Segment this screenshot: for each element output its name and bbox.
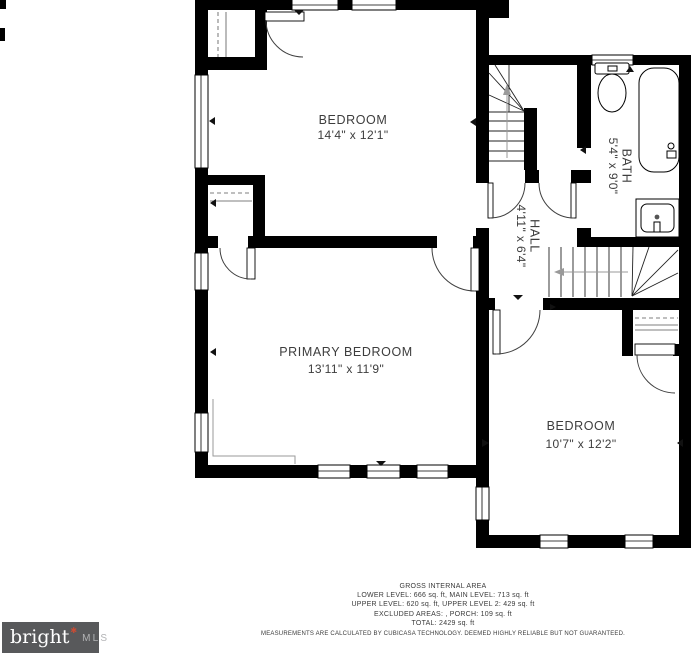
- room-dims-bedroom-right: 10'7" x 12'2": [545, 437, 616, 451]
- toilet-icon: [595, 63, 629, 112]
- area-summary-title: GROSS INTERNAL AREA: [143, 582, 693, 591]
- sink-icon: [636, 199, 679, 237]
- room-label-primary-bedroom: PRIMARY BEDROOM: [279, 345, 413, 359]
- room-dims-hall: 4'11" x 6'4": [514, 204, 528, 267]
- logo-star-icon: ✱: [70, 626, 77, 635]
- room-labels: BEDROOM 14'4" x 12'1" PRIMARY BEDROOM 13…: [279, 113, 633, 451]
- room-label-bath: BATH: [620, 149, 634, 184]
- area-summary-line: LOWER LEVEL: 666 sq. ft, MAIN LEVEL: 713…: [143, 591, 693, 600]
- room-dims-bedroom-top: 14'4" x 12'1": [317, 128, 388, 142]
- area-summary-line: EXCLUDED AREAS: , PORCH: 109 sq. ft: [143, 610, 693, 619]
- logo-suffix-text: MLS: [82, 633, 109, 644]
- ceiling-break-line: [213, 399, 295, 464]
- bathtub-icon: [639, 68, 679, 172]
- room-label-hall: HALL: [528, 219, 542, 253]
- closet-top-left: [218, 12, 226, 57]
- floor-plan-canvas: BEDROOM 14'4" x 12'1" PRIMARY BEDROOM 13…: [0, 0, 693, 654]
- area-summary: GROSS INTERNAL AREA LOWER LEVEL: 666 sq.…: [143, 582, 693, 639]
- room-label-bedroom-top: BEDROOM: [319, 113, 388, 127]
- room-label-bedroom-right: BEDROOM: [547, 419, 616, 433]
- closet-middle: [210, 193, 252, 201]
- area-summary-disclaimer: MEASUREMENTS ARE CALCULATED BY CUBICASA …: [143, 630, 693, 639]
- closet-bedroom-right: [635, 318, 678, 330]
- bright-mls-logo: bright ✱ MLS: [2, 622, 99, 653]
- area-summary-line: TOTAL: 2429 sq. ft: [143, 619, 693, 628]
- room-dims-bath: 5'4" x 9'0": [606, 138, 620, 195]
- stairs-upper: [489, 65, 524, 161]
- room-dims-primary-bedroom: 13'11" x 11'9": [308, 362, 384, 376]
- area-summary-line: UPPER LEVEL: 620 sq. ft, UPPER LEVEL 2: …: [143, 600, 693, 609]
- logo-brand-text: bright: [10, 628, 69, 647]
- stairs-lower: [549, 247, 678, 297]
